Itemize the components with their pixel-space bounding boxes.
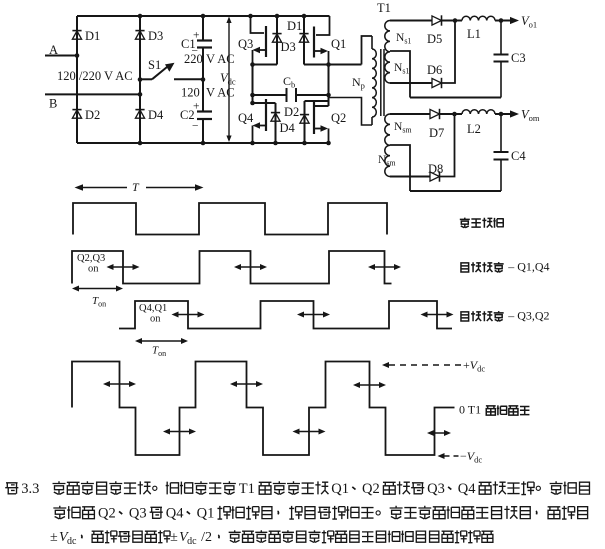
svg-text:Q4: Q4 <box>166 506 184 522</box>
svg-text:– Q3,Q2: – Q3,Q2 <box>507 309 549 323</box>
svg-text:dc: dc <box>67 536 77 547</box>
svg-text:Q2: Q2 <box>98 506 116 522</box>
svg-text:Q1: Q1 <box>331 481 349 497</box>
svg-text:220: 220 <box>184 52 203 66</box>
svg-text:D8: D8 <box>428 162 443 176</box>
svg-text:V AC: V AC <box>206 86 235 100</box>
svg-text:D2: D2 <box>284 105 299 119</box>
svg-text:D3: D3 <box>148 29 163 43</box>
svg-text:A: A <box>49 43 58 57</box>
svg-text:D1: D1 <box>85 29 100 43</box>
svg-text:Q2,Q3: Q2,Q3 <box>77 253 105 264</box>
svg-text:on: on <box>88 264 99 275</box>
svg-text:Q2: Q2 <box>331 111 346 125</box>
svg-text:Q3: Q3 <box>238 37 253 51</box>
svg-text:/2: /2 <box>201 530 212 545</box>
svg-text:D4: D4 <box>280 121 296 135</box>
svg-text:C4: C4 <box>511 149 526 163</box>
svg-text:−: − <box>192 121 199 133</box>
svg-text:Q1: Q1 <box>197 506 215 522</box>
svg-text:Q4: Q4 <box>238 111 254 125</box>
svg-text:dc: dc <box>187 536 197 547</box>
svg-text:±: ± <box>50 530 58 545</box>
svg-text:D7: D7 <box>429 126 444 140</box>
svg-text:V AC: V AC <box>206 52 235 66</box>
svg-text:Q4: Q4 <box>458 481 476 497</box>
svg-text:D2: D2 <box>85 108 100 122</box>
svg-text:+: + <box>193 101 200 113</box>
svg-text:B: B <box>49 97 57 111</box>
svg-text:+: + <box>193 30 200 42</box>
svg-text:Q4,Q1: Q4,Q1 <box>139 303 167 314</box>
svg-text:±: ± <box>170 530 178 545</box>
svg-text:D5: D5 <box>427 32 442 46</box>
svg-text:D1: D1 <box>287 19 302 33</box>
svg-text:Q3: Q3 <box>129 506 147 522</box>
svg-text:Q1: Q1 <box>331 37 346 51</box>
svg-text:– Q1,Q4: – Q1,Q4 <box>507 260 549 274</box>
svg-text:D3: D3 <box>281 40 296 54</box>
svg-text:on: on <box>150 314 161 325</box>
svg-text:120 /220 V AC: 120 /220 V AC <box>57 69 133 83</box>
svg-text:S1: S1 <box>148 58 161 72</box>
svg-text:D6: D6 <box>427 63 442 77</box>
svg-text:Q3: Q3 <box>427 481 445 497</box>
svg-text:0 T1: 0 T1 <box>459 403 481 417</box>
svg-text:3.3: 3.3 <box>21 481 39 497</box>
svg-text:Q2: Q2 <box>362 481 380 497</box>
svg-text:C3: C3 <box>511 51 526 65</box>
svg-text:T1: T1 <box>239 481 255 497</box>
svg-text:D4: D4 <box>148 108 164 122</box>
svg-text:L1: L1 <box>467 27 481 41</box>
svg-text:L2: L2 <box>467 122 481 136</box>
svg-text:T1: T1 <box>377 1 391 15</box>
svg-text:120: 120 <box>181 86 200 100</box>
